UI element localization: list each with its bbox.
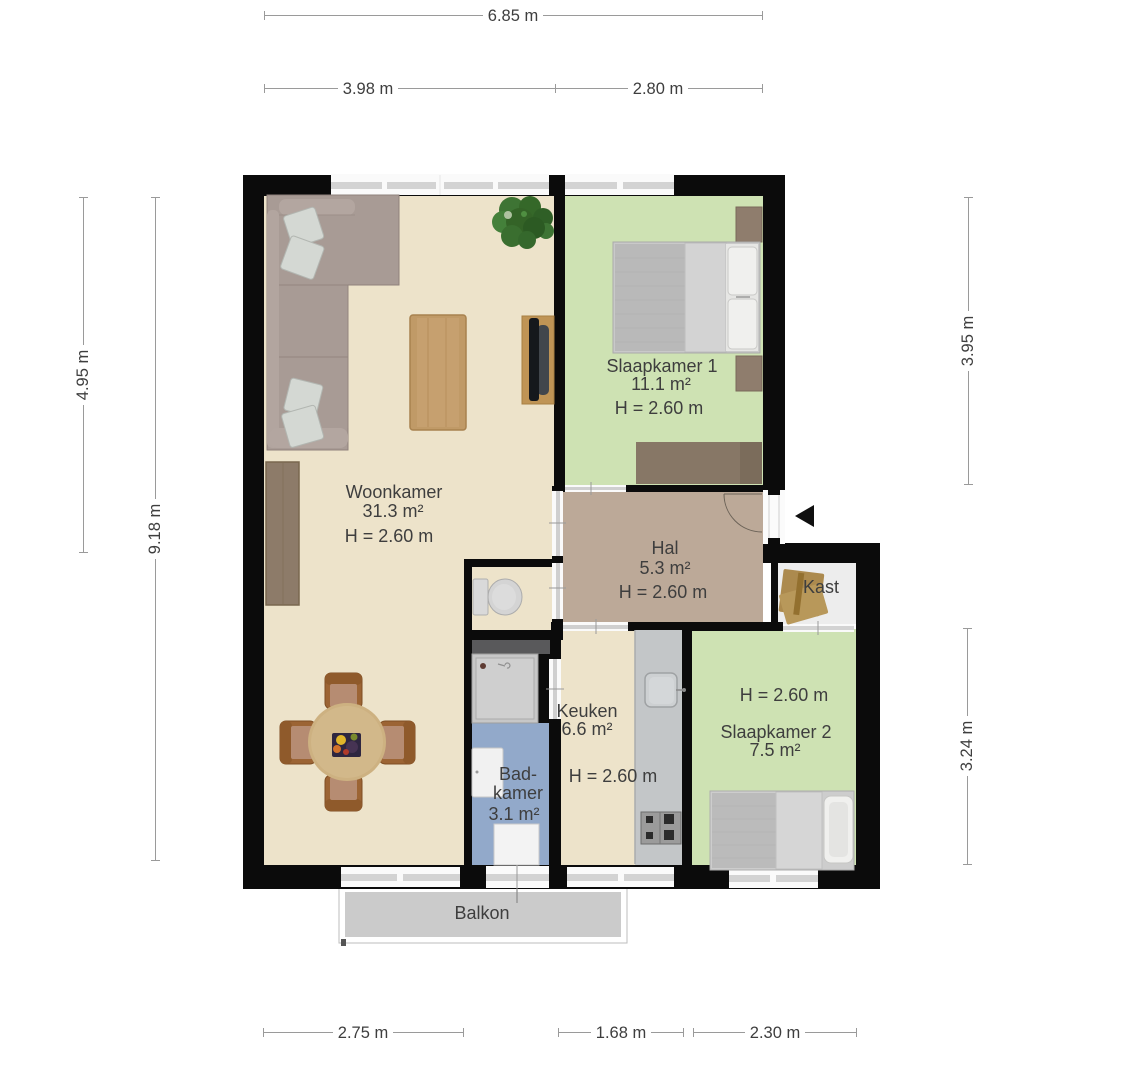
svg-text:Slaapkamer 2: Slaapkamer 2 — [720, 722, 831, 742]
svg-text:Hal: Hal — [651, 538, 678, 558]
svg-text:9.18 m: 9.18 m — [146, 504, 164, 554]
svg-text:H = 2.60 m: H = 2.60 m — [740, 685, 829, 705]
svg-text:Woonkamer: Woonkamer — [346, 482, 443, 502]
svg-text:2.75 m: 2.75 m — [338, 1024, 388, 1042]
svg-text:H = 2.60 m: H = 2.60 m — [615, 398, 704, 418]
svg-text:H = 2.60 m: H = 2.60 m — [569, 766, 658, 786]
svg-text:Balkon: Balkon — [454, 903, 509, 923]
svg-text:2.80 m: 2.80 m — [633, 80, 683, 98]
svg-text:Kast: Kast — [803, 577, 839, 597]
svg-text:3.24 m: 3.24 m — [958, 721, 976, 771]
svg-text:kamer: kamer — [493, 783, 543, 803]
svg-text:31.3 m²: 31.3 m² — [362, 501, 423, 521]
svg-text:H = 2.60 m: H = 2.60 m — [345, 526, 434, 546]
svg-text:Slaapkamer 1: Slaapkamer 1 — [606, 356, 717, 376]
svg-text:H = 2.60 m: H = 2.60 m — [619, 582, 708, 602]
svg-text:3.98 m: 3.98 m — [343, 80, 393, 98]
svg-text:3.95 m: 3.95 m — [959, 316, 977, 366]
svg-text:2.30 m: 2.30 m — [750, 1024, 800, 1042]
svg-text:Keuken: Keuken — [556, 701, 617, 721]
svg-text:5.3 m²: 5.3 m² — [639, 558, 690, 578]
svg-text:1.68 m: 1.68 m — [596, 1024, 646, 1042]
svg-text:6.85 m: 6.85 m — [488, 7, 538, 25]
svg-text:Bad-: Bad- — [499, 764, 537, 784]
svg-text:6.6 m²: 6.6 m² — [561, 719, 612, 739]
svg-text:3.1 m²: 3.1 m² — [488, 804, 539, 824]
svg-text:7.5 m²: 7.5 m² — [749, 740, 800, 760]
svg-text:4.95 m: 4.95 m — [74, 350, 92, 400]
svg-text:11.1 m²: 11.1 m² — [631, 374, 691, 394]
